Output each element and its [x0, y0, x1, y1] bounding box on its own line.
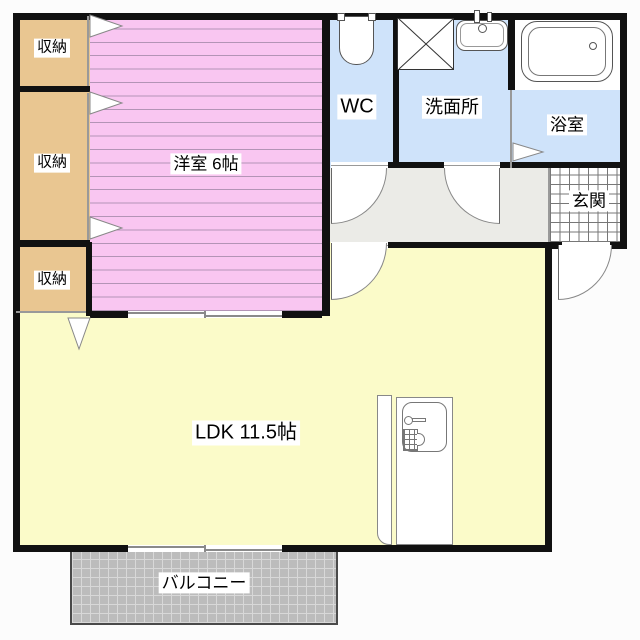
doorway-washroom-threshold: [444, 165, 500, 166]
sliding-door-balcony: [128, 545, 282, 552]
label-balcony: バルコニー: [159, 572, 250, 593]
wall-top: [13, 13, 627, 20]
wall-hall-top-b: [500, 162, 627, 168]
label-ldk: LDK 11.5帖: [192, 421, 300, 446]
wall-western-right: [322, 13, 330, 316]
kitchen-counter-side-icon: [377, 395, 392, 545]
wall-hall-bottom: [388, 242, 548, 248]
label-bathroom: 浴室: [547, 114, 587, 135]
sliding-door-western-ldk: [128, 311, 282, 318]
toilet-tank-left-icon: [337, 13, 345, 21]
toilet-icon: [339, 16, 374, 65]
label-wc: WC: [337, 95, 376, 120]
wall-ldk-right: [545, 242, 552, 552]
label-washroom: 洗面所: [422, 96, 482, 119]
kitchen-drain-rack-icon: [403, 429, 418, 451]
label-closet-top: 収納: [34, 39, 70, 58]
label-entrance: 玄関: [569, 190, 609, 211]
wall-bottom: [13, 545, 552, 552]
washing-machine-pan-icon: [397, 18, 454, 70]
toilet-tank-right-icon: [368, 13, 376, 21]
wall-closet-bottom-right: [86, 242, 92, 316]
washbasin-faucet-tab1-icon: [474, 10, 480, 23]
bathtub-drain-icon: [589, 42, 597, 50]
partition-washroom-bathroom: [510, 90, 512, 168]
entrance-step-line: [548, 168, 550, 242]
wall-closet-top-bottom: [13, 86, 90, 92]
wall-right-upper: [620, 13, 627, 249]
wall-hall-top-a: [388, 162, 445, 168]
wall-left: [13, 13, 20, 552]
label-western-room: 洋室 6帖: [170, 153, 241, 174]
washbasin-faucet-tab2-icon: [487, 12, 492, 22]
washbasin-faucet-knob-icon: [478, 24, 487, 33]
label-closet-bottom: 収納: [34, 271, 70, 290]
wall-washroom-bath-upper: [508, 13, 515, 90]
kitchen-faucet-stem-icon: [412, 418, 426, 422]
wall-entrance-bottom-right: [610, 242, 627, 249]
floorplan: 収納 収納 収納 洋室 6帖 WC 洗面所 浴室 玄関 LDK 11.5帖 バル…: [0, 0, 640, 640]
doorway-wc-threshold: [331, 165, 388, 166]
closet-middle-opening: [87, 93, 89, 240]
label-closet-middle: 収納: [34, 154, 70, 173]
closet-top-opening: [87, 16, 89, 86]
door-arc-entrance: [558, 245, 612, 300]
bathtub-inner-icon: [528, 27, 606, 76]
wall-closet-middle-bottom: [13, 240, 90, 247]
closet-bottom-opening: [16, 311, 86, 313]
